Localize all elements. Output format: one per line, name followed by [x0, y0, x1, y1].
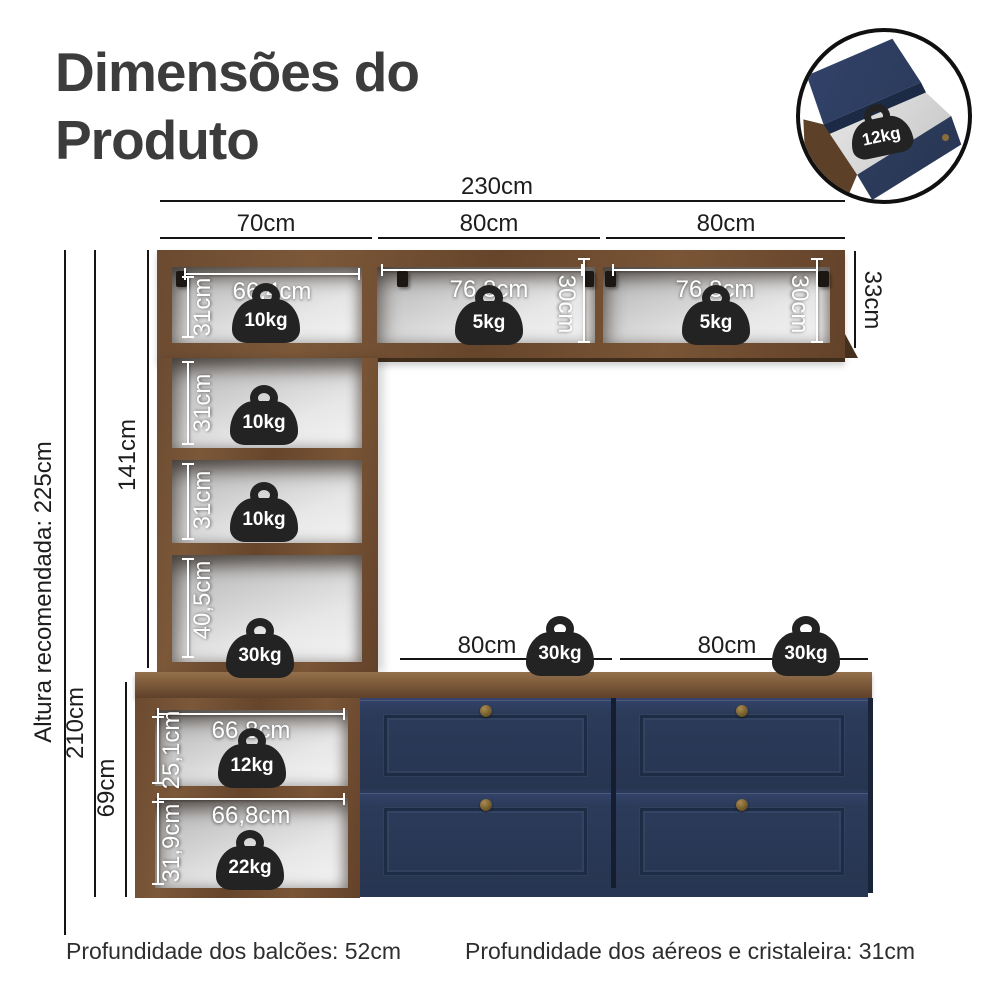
dim-tower-height-label: 141cm — [114, 419, 142, 491]
wall-right-height-line — [816, 258, 818, 343]
base-shelf-bottom-load-badge: 22kg — [216, 830, 284, 890]
drawer-panel — [384, 808, 587, 875]
wall-right-load-badge: 5kg — [682, 285, 750, 345]
drawer-knob — [480, 799, 492, 811]
dim-wall-height-label: 33cm — [858, 271, 886, 330]
dim-col3-line — [606, 237, 845, 239]
load-label: 30kg — [538, 643, 581, 665]
wall-mid-height-label: 30cm — [552, 275, 580, 334]
dim-tower-height-line — [147, 250, 149, 668]
tower-shelf2-height-label: 31cm — [189, 374, 217, 433]
wall-mid-height-line — [583, 258, 585, 343]
drawer-panel — [384, 715, 587, 776]
drawer-left-top — [360, 700, 611, 789]
wall-mid-width-line — [381, 269, 583, 271]
wall-right-height-label: 30cm — [785, 275, 813, 334]
base-span1-label: 80cm — [458, 632, 517, 660]
dim-base-height-line — [125, 682, 127, 897]
load-label: 5kg — [473, 312, 506, 334]
dim-total-width-label: 230cm — [461, 173, 533, 201]
dim-base-height-label: 69cm — [93, 759, 121, 818]
load-label: 10kg — [242, 509, 285, 531]
load-label: 10kg — [242, 412, 285, 434]
tower-shelf4-height-label: 40,5cm — [189, 561, 217, 640]
drawer-right-bottom — [616, 793, 868, 888]
dim-col1-line — [160, 237, 372, 239]
dim-col1-label: 70cm — [237, 210, 296, 238]
drawer-knob — [736, 799, 748, 811]
drawer-knob — [480, 705, 492, 717]
base-side-panel — [868, 698, 873, 893]
load-label: 5kg — [700, 312, 733, 334]
dim-total-width-line — [160, 200, 845, 202]
dim-col2-label: 80cm — [460, 210, 519, 238]
load-label: 10kg — [244, 310, 287, 332]
tower-shelf3-load-badge: 10kg — [230, 482, 298, 542]
hinge-icon — [397, 271, 408, 287]
drawer-panel — [640, 715, 844, 776]
inset-load-label: 12kg — [860, 123, 902, 151]
hinge-icon — [818, 271, 829, 287]
dim-col3-label: 80cm — [697, 210, 756, 238]
hinge-icon — [605, 271, 616, 287]
dim-wall-height-line — [854, 251, 856, 348]
drawer-left-bottom — [360, 793, 611, 888]
load-label: 30kg — [784, 643, 827, 665]
tower-shelf1-width-line — [184, 273, 360, 275]
tower-shelf3-height-label: 31cm — [189, 471, 217, 530]
drawer-right-top — [616, 700, 868, 789]
base-shelf-bottom-height-label: 31,9cm — [158, 804, 186, 883]
drawer-section-divider — [611, 698, 616, 888]
wall-mid-load-badge: 5kg — [455, 285, 523, 345]
base-shelf-bottom-width-line — [157, 798, 345, 800]
drawer-inset-circle: 12kg — [796, 28, 972, 204]
base-shelf-top-load-badge: 12kg — [218, 728, 286, 788]
tower-shelf2-load-badge: 10kg — [230, 385, 298, 445]
base-shelf-top-height-label: 25,1cm — [158, 711, 186, 790]
dim-recommended-height-label: Altura recomendada: 225cm — [30, 441, 58, 743]
tower-shelf1-height-label: 31cm — [189, 278, 217, 337]
drawer-knob — [736, 705, 748, 717]
load-label: 12kg — [230, 755, 273, 777]
wall-cabinet-side-bevel — [845, 334, 858, 358]
page-title: Dimensões do Produto — [55, 38, 495, 174]
dim-total-height-label: 210cm — [62, 687, 90, 759]
load-label: 30kg — [238, 645, 281, 667]
inset-knob — [942, 134, 949, 141]
base-span1-load-badge: 30kg — [526, 616, 594, 676]
drawer-panel — [640, 808, 844, 875]
dim-recommended-height-line — [64, 250, 66, 935]
dim-col2-line — [378, 237, 600, 239]
base-span2-label: 80cm — [698, 632, 757, 660]
load-label: 22kg — [228, 857, 271, 879]
base-span2-load-badge: 30kg — [772, 616, 840, 676]
tower-shelf1-load-badge: 10kg — [232, 283, 300, 343]
footnote-wall-depth: Profundidade dos aéreos e cristaleira: 3… — [465, 938, 915, 965]
footnote-base-depth: Profundidade dos balcões: 52cm — [66, 938, 401, 965]
tower-shelf4-load-badge: 30kg — [226, 618, 294, 678]
wall-right-width-line — [612, 269, 818, 271]
product-dimensions-diagram: Dimensões do Produto 12kg 230cm 70cm 80c… — [0, 0, 1000, 1000]
base-shelf-bottom-width-label: 66,8cm — [212, 802, 291, 830]
